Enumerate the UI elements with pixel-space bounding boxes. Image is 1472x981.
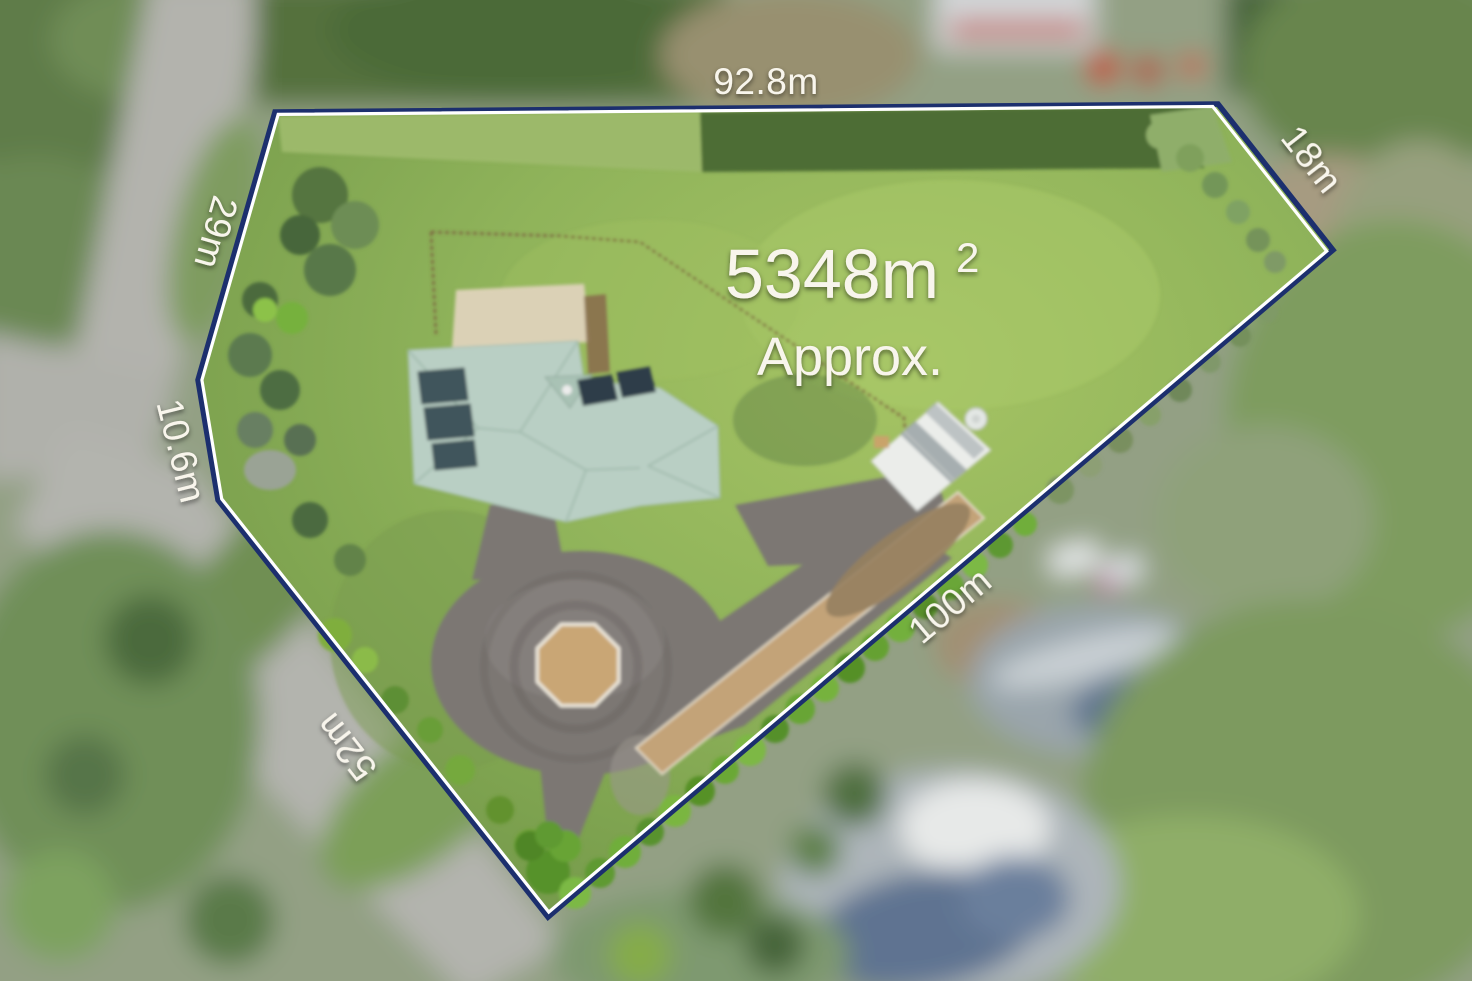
dimension-label-top: 92.8m	[713, 61, 818, 102]
neighbor-building-top	[935, 0, 1095, 50]
aerial-property-photo: 92.8m 18m 100m 52m 10.6m 29m 5348m 2 App…	[0, 0, 1472, 981]
garden-box	[874, 436, 889, 448]
concrete-pad	[452, 284, 590, 348]
area-value: 5348m	[725, 235, 939, 313]
octagon-garden-bed	[537, 624, 618, 705]
area-superscript: 2	[956, 234, 979, 281]
area-qualifier: Approx.	[757, 327, 943, 387]
